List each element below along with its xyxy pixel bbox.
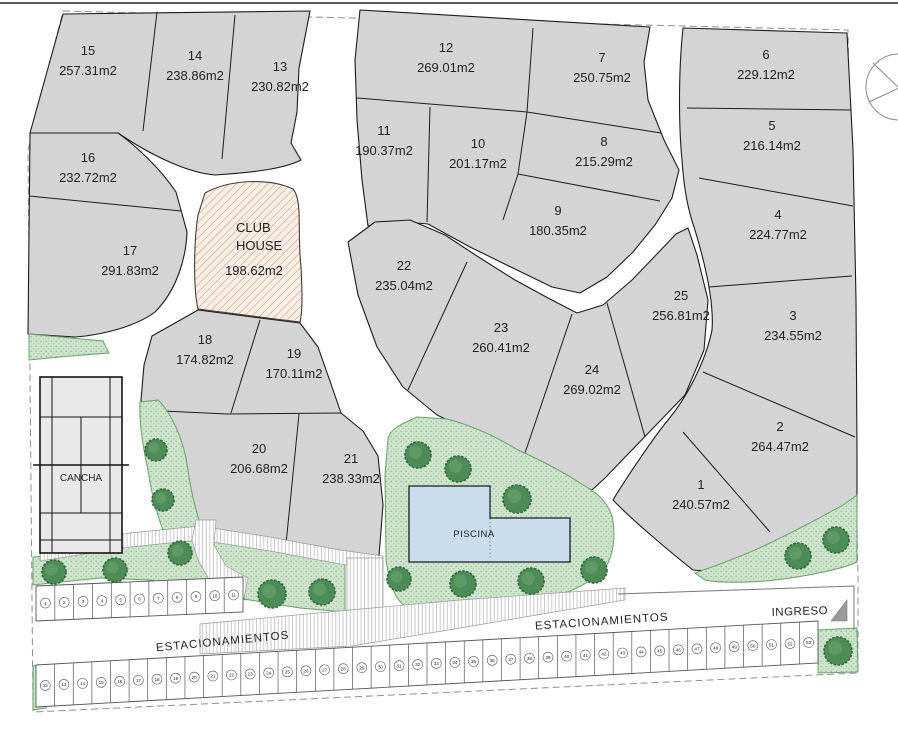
parking-space-number: 51 — [769, 642, 775, 647]
tree-canopy-highlight — [262, 584, 276, 598]
parking-space-number: 23 — [248, 672, 254, 677]
lot-area-label: 230.82m2 — [251, 79, 309, 94]
lot-number-label: 23 — [494, 320, 508, 335]
lot-area-label: 257.31m2 — [59, 63, 117, 78]
parking-space-number: 48 — [713, 645, 719, 650]
tree-canopy-highlight — [391, 571, 403, 583]
parking-space-number: 18 — [154, 677, 160, 682]
tree-canopy-highlight — [148, 442, 159, 453]
tree-canopy-highlight — [522, 572, 535, 585]
tree-canopy-highlight — [828, 641, 842, 655]
lot-number-label: 2 — [776, 419, 783, 434]
parking-space-number: 39 — [545, 655, 551, 660]
green-strip-under-lot17 — [29, 334, 109, 360]
piscina-label: PISCINA — [453, 529, 495, 540]
lot-number-label: 5 — [768, 118, 775, 133]
parking-space-number: 33 — [434, 661, 440, 666]
tennis-court: CANCHA — [33, 377, 129, 553]
parking-space-number: 22 — [229, 673, 235, 678]
parking-space-number: 10 — [212, 593, 218, 598]
tree-canopy-highlight — [46, 564, 58, 576]
lot-area-label: 238.86m2 — [166, 68, 224, 83]
walkway-between-greens — [347, 558, 383, 612]
tree-canopy-highlight — [313, 583, 326, 596]
parking-space-number: 36 — [490, 658, 496, 663]
parking-space-number: 27 — [322, 667, 328, 672]
lot-area-label: 250.75m2 — [573, 70, 631, 85]
lot-area-label: 235.04m2 — [375, 278, 433, 293]
lot-number-label: 22 — [397, 258, 411, 273]
tree-canopy-highlight — [449, 460, 462, 473]
parking-space-number: 52 — [788, 641, 794, 646]
parking-space-number: 31 — [397, 663, 403, 668]
lot-number-label: 7 — [598, 50, 605, 65]
lot-area-label: 224.77m2 — [749, 227, 807, 242]
lot-area-label: 291.83m2 — [101, 263, 159, 278]
entrance-arrow-icon — [831, 600, 847, 621]
tree-canopy-highlight — [155, 492, 166, 503]
tree-canopy-highlight — [409, 446, 422, 459]
parking-space-number: 17 — [136, 678, 142, 683]
lot-area-label: 229.12m2 — [737, 67, 795, 82]
lot-area-label: 256.81m2 — [652, 308, 710, 323]
lot-number-label: 11 — [377, 123, 391, 138]
lot-number-label: 10 — [471, 136, 485, 151]
parking-space-number: 15 — [99, 680, 105, 685]
lot-number-label: 24 — [585, 362, 599, 377]
parking-space-number: 1 — [44, 601, 47, 606]
parking-space-number: 41 — [583, 653, 589, 658]
parking-space-number: 14 — [80, 681, 86, 686]
tree-canopy-highlight — [507, 489, 521, 503]
tree-canopy-highlight — [585, 561, 598, 574]
parking-space-number: 4 — [101, 598, 104, 603]
lot-area-label: 174.82m2 — [176, 352, 234, 367]
parking-space-number: 53 — [806, 640, 812, 645]
parking-space-number: 3 — [82, 599, 85, 604]
parking-space-number: 7 — [157, 596, 160, 601]
parking-space-number: 43 — [620, 651, 626, 656]
parking-space-number: 26 — [303, 669, 309, 674]
lot-number-label: 20 — [252, 441, 266, 456]
lot-number-label: 15 — [81, 43, 95, 58]
parking-space-number: 9 — [195, 594, 198, 599]
lot-area-label: 238.33m2 — [322, 471, 380, 486]
lot-number-label: 25 — [674, 288, 688, 303]
parking-space-number: 32 — [415, 662, 421, 667]
lot-area-label: 216.14m2 — [743, 138, 801, 153]
lot-area-label: 215.29m2 — [575, 154, 633, 169]
lot-area-label: 201.17m2 — [449, 156, 507, 171]
lot-area-label: 234.55m2 — [764, 328, 822, 343]
club-house-line2: HOUSE — [236, 238, 283, 253]
parking-space-number: 49 — [732, 644, 738, 649]
parking-space-number: 13 — [61, 682, 67, 687]
roundabout-sketch — [866, 54, 898, 120]
parking-space-number: 34 — [452, 660, 458, 665]
lot-area-label: 264.47m2 — [751, 439, 809, 454]
parking-space-number: 29 — [359, 665, 365, 670]
lot-number-label: 4 — [774, 207, 781, 222]
tree-canopy-highlight — [454, 575, 467, 588]
lot-area-label: 170.11m2 — [266, 366, 323, 381]
lot-area-label: 269.02m2 — [563, 382, 621, 397]
parking-space-number: 42 — [601, 652, 607, 657]
lot-number-label: 3 — [789, 308, 796, 323]
site-plan-page: CANCHA PISCINA 1234567891011121314151617… — [0, 0, 898, 734]
parking-space-number: 8 — [176, 595, 179, 600]
parking-space-number: 20 — [192, 675, 198, 680]
parking-space-number: 40 — [564, 654, 570, 659]
lot-number-label: 8 — [600, 134, 607, 149]
parking-space-number: 6 — [138, 597, 141, 602]
parking-space-number: 2 — [63, 600, 66, 605]
parking-space-number: 45 — [657, 649, 663, 654]
lot-number-label: 16 — [81, 150, 95, 165]
lot-area-label: 240.57m2 — [672, 497, 730, 512]
lot-number-label: 9 — [554, 203, 561, 218]
parking-space-number: 44 — [639, 650, 645, 655]
lot-area-label: 180.35m2 — [529, 223, 587, 238]
parking-label-right: ESTACIONAMIENTOS — [535, 611, 669, 632]
tree-canopy-highlight — [789, 547, 802, 560]
parking-space-number: 19 — [173, 676, 179, 681]
lot-area-label: 232.72m2 — [59, 170, 117, 185]
parking-space-number: 50 — [750, 643, 756, 648]
tree-canopy-highlight — [172, 545, 184, 557]
lot-number-label: 21 — [344, 451, 358, 466]
parking-space-number: 37 — [508, 657, 514, 662]
parking-space-number: 28 — [341, 666, 347, 671]
club-house-line1: CLUB — [236, 220, 271, 235]
lot-number-label: 1 — [697, 477, 704, 492]
parking-space-number: 21 — [210, 674, 216, 679]
lot-number-label: 6 — [762, 47, 769, 62]
lot-number-label: 12 — [439, 40, 453, 55]
club-house-area: 198.62m2 — [225, 263, 283, 278]
parking-space-number: 47 — [694, 647, 700, 652]
lot-number-label: 19 — [287, 346, 301, 361]
lot-area-label: 260.41m2 — [472, 340, 530, 355]
parking-space-number: 24 — [266, 671, 272, 676]
tree-canopy-highlight — [107, 562, 119, 574]
block-lots-16-17 — [28, 133, 187, 337]
lot-number-label: 14 — [188, 48, 202, 63]
parking-space-number: 46 — [676, 648, 682, 653]
lot-number-label: 17 — [123, 243, 137, 258]
parking-space-number: 16 — [117, 679, 123, 684]
entrance-label: INGRESO — [771, 605, 828, 619]
parking-space-number: 25 — [285, 670, 291, 675]
tree-canopy-highlight — [827, 531, 840, 544]
site-plan-drawing: CANCHA PISCINA 1234567891011121314151617… — [0, 0, 898, 734]
parking-space-number: 5 — [119, 598, 122, 603]
lot-area-label: 190.37m2 — [355, 143, 413, 158]
parking-space-number: 30 — [378, 664, 384, 669]
parking-space-number: 11 — [231, 593, 236, 598]
parking-space-number: 35 — [471, 659, 477, 664]
lot-area-label: 269.01m2 — [417, 60, 475, 75]
parking-space-number: 38 — [527, 656, 533, 661]
lot-area-label: 206.68m2 — [230, 461, 288, 476]
parking-space-number: 12 — [43, 683, 49, 688]
lot-number-label: 13 — [273, 59, 287, 74]
lot-number-label: 18 — [198, 332, 212, 347]
cancha-label: CANCHA — [60, 473, 103, 484]
